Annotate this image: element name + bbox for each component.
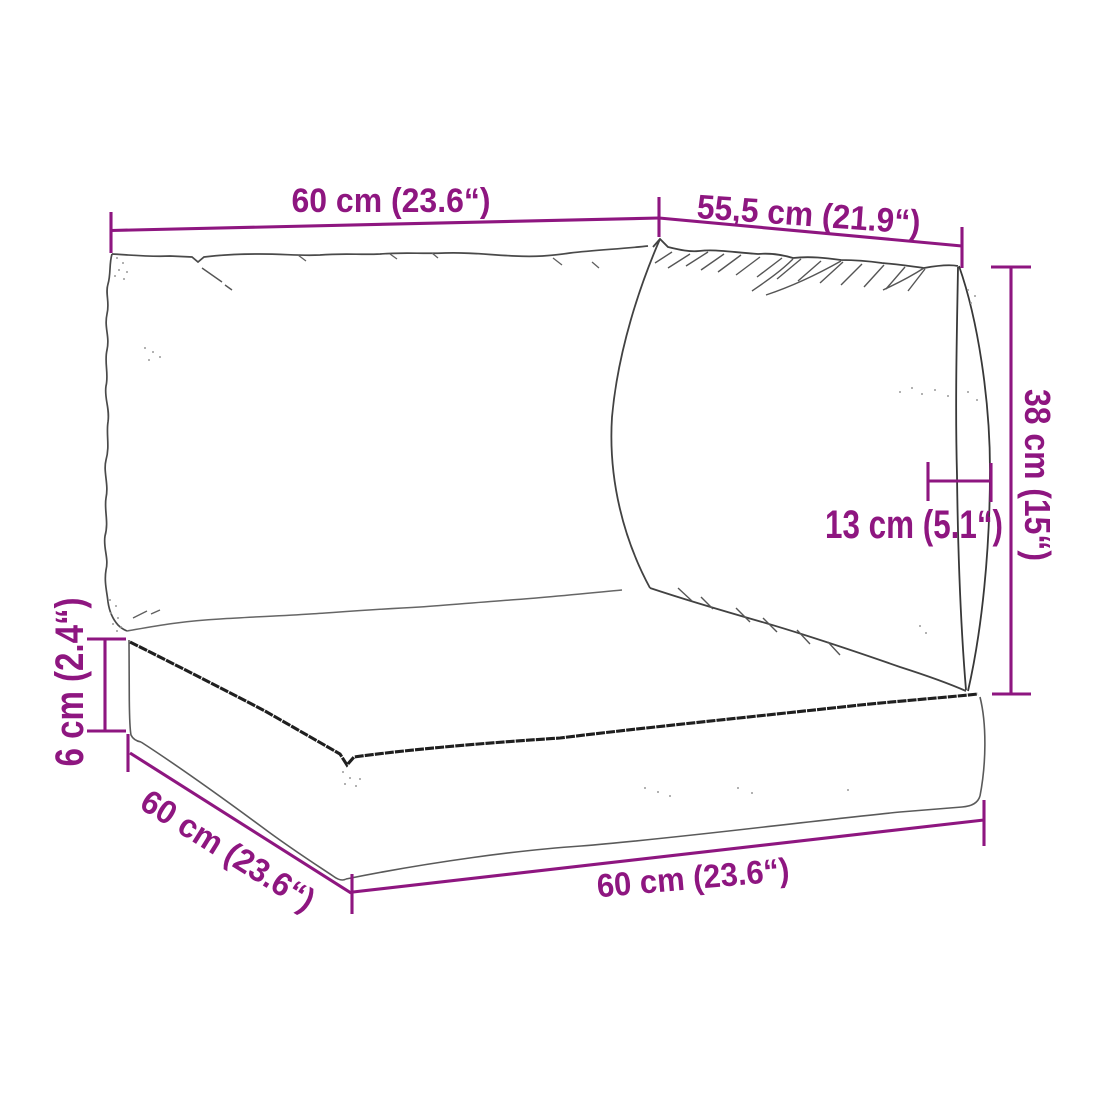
svg-text:13 cm (5.1“): 13 cm (5.1“) [825,503,1003,547]
svg-text:38 cm (15“): 38 cm (15“) [1017,389,1058,561]
svg-text:60 cm (23.6“): 60 cm (23.6“) [292,182,491,220]
svg-text:6 cm (2.4“): 6 cm (2.4“) [48,598,92,767]
